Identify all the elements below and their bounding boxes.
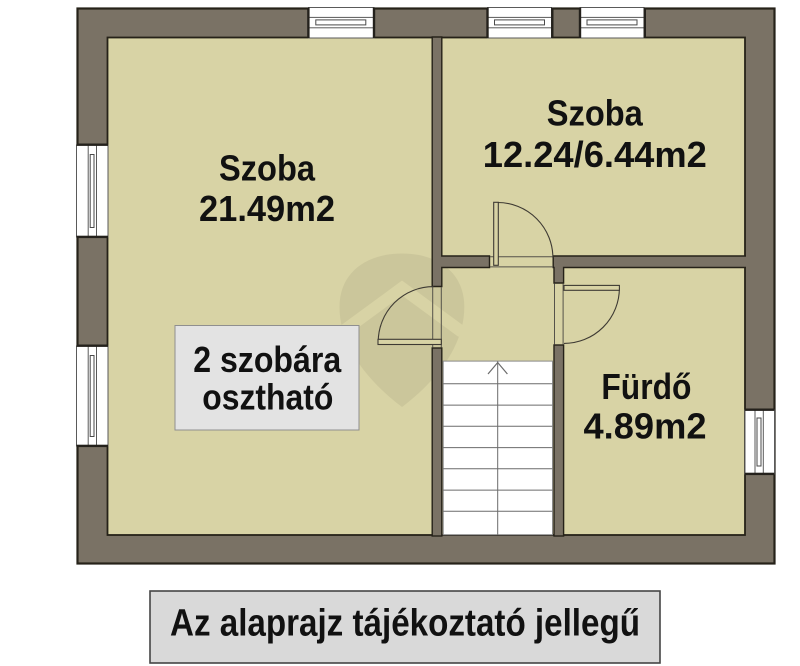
svg-text:osztható: osztható [202, 376, 333, 417]
svg-text:Szoba: Szoba [219, 148, 316, 189]
svg-text:Az alaprajz tájékoztató jelleg: Az alaprajz tájékoztató jellegű [170, 603, 640, 645]
svg-text:21.49m2: 21.49m2 [199, 188, 335, 229]
svg-text:12.24/6.44m2: 12.24/6.44m2 [483, 134, 707, 175]
svg-text:Szoba: Szoba [547, 93, 644, 134]
svg-text:2 szobára: 2 szobára [193, 339, 342, 380]
svg-text:4.89m2: 4.89m2 [584, 405, 707, 446]
svg-text:Fürdő: Fürdő [601, 366, 691, 407]
